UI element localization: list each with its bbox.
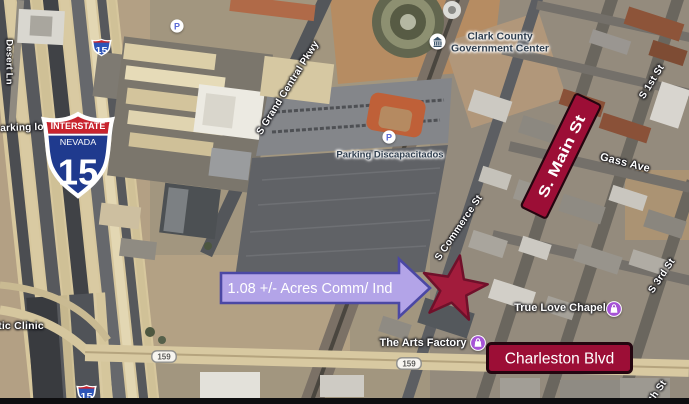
i15-shield-small-upper: 15 — [91, 39, 112, 56]
arts-factory-place-icon — [470, 335, 486, 351]
poi-label-arts-factory: The Arts Factory — [379, 337, 466, 349]
charleston-blvd-callout: Charleston Blvd — [485, 341, 637, 378]
svg-text:159: 159 — [157, 353, 171, 362]
svg-text:15: 15 — [58, 152, 99, 193]
interstate-15-shield: INTERSTATE NEVADA 15 — [40, 112, 116, 198]
svg-text:INTERSTATE: INTERSTATE — [51, 121, 106, 131]
svg-text:NEVADA: NEVADA — [60, 138, 97, 147]
sr159-shield-east: 159 — [396, 357, 422, 370]
street-label-desert-ln: Desert Ln — [4, 39, 15, 85]
svg-text:Charleston Blvd: Charleston Blvd — [505, 351, 614, 368]
site-star-icon — [418, 253, 490, 325]
aerial-map: Desert Ln S Grand Central Pkwy S Commerc… — [0, 0, 689, 404]
sr159-shield-west: 159 — [151, 350, 177, 363]
svg-text:159: 159 — [402, 360, 416, 369]
poi-label-parking-discapacitados: Parking Discapacitados — [336, 150, 443, 161]
parking-p-icon-south: P — [382, 130, 396, 144]
parking-p-icon-north: P — [170, 19, 184, 33]
parcel-label: 1.08 +/- Acres Comm/ Ind — [228, 280, 393, 297]
parcel-arrow-callout: 1.08 +/- Acres Comm/ Ind — [218, 256, 434, 320]
svg-text:15: 15 — [95, 46, 108, 55]
svg-text:P: P — [386, 132, 392, 142]
label-parking-lot-partial: arking lo — [0, 122, 44, 135]
label-clinic-partial: tic Clinic — [0, 320, 44, 332]
svg-text:P: P — [174, 21, 180, 31]
government-center-line2: Government Center — [451, 43, 549, 55]
poi-label-true-love-chapel: True Love Chapel — [514, 302, 606, 314]
government-center-line1: Clark County — [451, 32, 549, 44]
image-bottom-border — [0, 398, 689, 404]
government-building-icon — [429, 33, 446, 50]
chapel-place-icon — [606, 301, 622, 317]
poi-label-government-center: Clark County Government Center — [451, 32, 549, 55]
